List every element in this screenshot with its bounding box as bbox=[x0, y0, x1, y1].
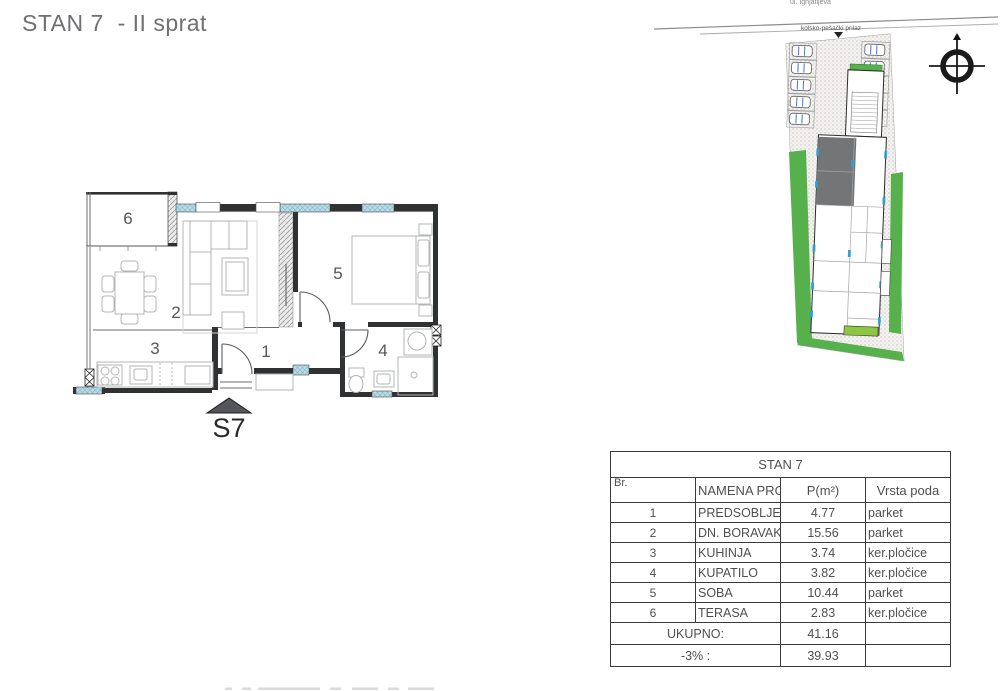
table-row: 4 KUPATILO 3.82 ker.pločice bbox=[611, 563, 951, 583]
room-label-hall: 1 bbox=[261, 342, 270, 361]
terrace-green-bar bbox=[844, 326, 878, 336]
discount-label: -3% : bbox=[611, 645, 781, 667]
room-label-terrace: 6 bbox=[123, 209, 132, 228]
room-labels: 1 2 3 4 5 6 bbox=[123, 209, 387, 361]
shower bbox=[398, 357, 433, 395]
col-header-area: P(m²) bbox=[781, 478, 866, 503]
pillow bbox=[418, 240, 429, 266]
table-total-row: UKUPNO: 41.16 bbox=[611, 623, 951, 645]
room-label-bathroom: 4 bbox=[378, 341, 387, 360]
chair bbox=[102, 276, 114, 292]
side-table bbox=[222, 312, 244, 329]
discount-value: 39.93 bbox=[781, 645, 866, 667]
site-plan: ul. Ignjatijeva kolsko-pešački prilaz bbox=[654, 0, 998, 361]
table-discount-row: -3% : 39.93 bbox=[611, 645, 951, 667]
apartment-marker: S7 bbox=[207, 398, 251, 443]
col-header-name: NAMENA PROSTORIJA bbox=[696, 478, 781, 503]
sofa bbox=[183, 221, 211, 315]
table-title: STAN 7 bbox=[611, 452, 951, 478]
bathroom-door-arc bbox=[341, 330, 368, 357]
chair bbox=[144, 276, 156, 292]
room-label-bedroom: 5 bbox=[333, 264, 342, 283]
room-label-living: 2 bbox=[171, 303, 180, 322]
marker-triangle-icon bbox=[207, 398, 251, 413]
balcony bbox=[882, 239, 892, 263]
dining-table bbox=[115, 272, 144, 314]
total-label: UKUPNO: bbox=[611, 623, 781, 645]
entrance-door-arc bbox=[222, 344, 252, 374]
col-header-floor: Vrsta poda bbox=[866, 478, 951, 503]
nightstand bbox=[419, 224, 432, 235]
access-road-label: kolsko-pešački prilaz bbox=[801, 25, 861, 32]
table-row: 2 DN. BORAVAK S TRPEZARIJOM 15.56 parket bbox=[611, 523, 951, 543]
street-name-label: ul. Ignjatijeva bbox=[790, 0, 831, 6]
clipped-bottom-text bbox=[225, 688, 434, 691]
balcony bbox=[880, 271, 890, 295]
building-top-section bbox=[845, 70, 884, 137]
table-row: 3 KUHINJA 3.74 ker.pločice bbox=[611, 543, 951, 563]
table-row: 5 SOBA 10.44 parket bbox=[611, 583, 951, 603]
entry-arrow-icon bbox=[834, 32, 843, 38]
north-compass-icon bbox=[929, 33, 985, 94]
pillow bbox=[418, 272, 429, 298]
chair bbox=[121, 314, 138, 324]
entry-step bbox=[256, 374, 293, 390]
bedroom-door-arc bbox=[300, 292, 330, 322]
table-row: 1 PREDSOBLJE 4.77 parket bbox=[611, 503, 951, 523]
total-value: 41.16 bbox=[781, 623, 866, 645]
area-table: STAN 7 Br. NAMENA PROSTORIJA P(m²) Vrsta… bbox=[610, 451, 951, 667]
nightstand bbox=[419, 305, 432, 316]
toilet-bowl bbox=[349, 376, 363, 393]
marker-label: S7 bbox=[212, 413, 245, 443]
table-row: 6 TERASA 2.83 ker.pločice bbox=[611, 603, 951, 623]
chair bbox=[121, 261, 138, 271]
room-label-kitchen: 3 bbox=[150, 339, 159, 358]
chair bbox=[102, 296, 114, 312]
plan-sheet: STAN 7 - II sprat bbox=[0, 0, 1000, 691]
chair bbox=[144, 296, 156, 312]
floor-plan: 1 2 3 4 5 6 S7 bbox=[73, 192, 441, 443]
col-header-br: Br. bbox=[611, 478, 696, 503]
